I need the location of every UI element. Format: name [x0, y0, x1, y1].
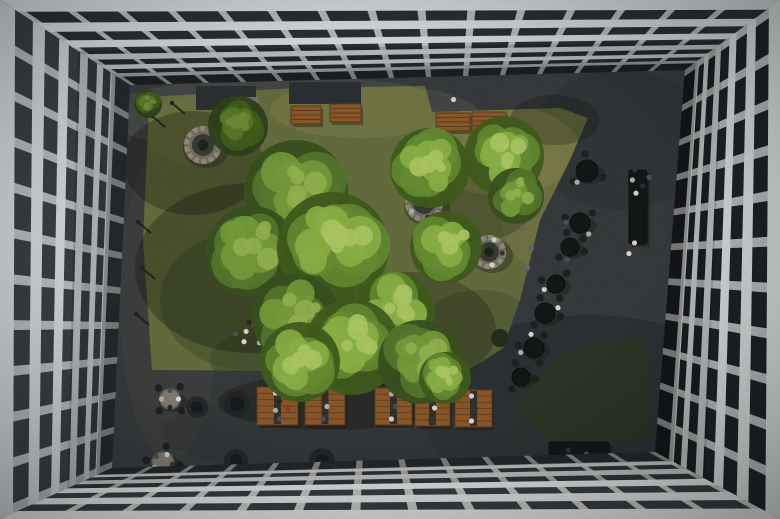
film-grain	[0, 0, 780, 519]
scene-canvas	[0, 0, 780, 519]
courtyard-aerial-photo	[0, 0, 780, 519]
